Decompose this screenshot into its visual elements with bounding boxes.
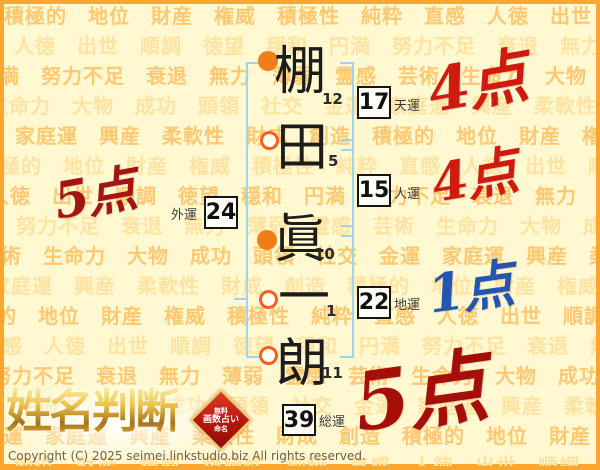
jin-un-value-box: 15 xyxy=(357,174,391,207)
name-character: 田 xyxy=(276,122,328,174)
ten-un-label: 天運 xyxy=(394,95,420,114)
gai-un-label: 外運 xyxy=(171,204,197,223)
inner-bracket-line xyxy=(352,62,354,358)
inner-bracket-top-cap xyxy=(340,62,352,64)
chi-un-score: 1点 xyxy=(425,258,516,321)
stroke-count: 1 xyxy=(326,302,336,320)
outer-bracket-line xyxy=(246,62,248,358)
sou-un-score: 5点 xyxy=(349,345,491,443)
inner-bracket-tick xyxy=(341,225,352,227)
name-character: 一 xyxy=(278,272,330,324)
outer-bracket-tick xyxy=(234,298,246,300)
inner-bracket-tick xyxy=(341,149,352,151)
outer-bracket-bottom-cap xyxy=(246,356,260,358)
inner-bracket-tick xyxy=(341,235,352,237)
char-bullet-icon xyxy=(259,290,278,309)
background-word-row: 積極的 地位 財産 権威 積極性 純粋 直感 人徳 出世 順調 徳望 穏和 円満… xyxy=(4,4,596,30)
jin-un-score: 4点 xyxy=(428,145,520,211)
seal-line-2: 画数占い xyxy=(203,415,239,425)
seal-text: 無料 画数占い 命名 xyxy=(201,400,241,440)
seal-line-1: 無料 xyxy=(214,407,228,415)
gai-un-value-box: 24 xyxy=(204,196,238,229)
chi-un-label: 地運 xyxy=(394,294,420,313)
stroke-count: 11 xyxy=(322,364,343,382)
stroke-count: 5 xyxy=(328,152,338,170)
stroke-count: 12 xyxy=(322,90,343,108)
jin-un-label: 人運 xyxy=(394,183,420,202)
site-logo[interactable]: 姓名判断 xyxy=(6,386,178,437)
gai-un-score: 5点 xyxy=(50,163,138,226)
chi-un-value-box: 22 xyxy=(357,286,391,319)
copyright-text: Copyright (C) 2025 seimei.linkstudio.biz… xyxy=(8,449,366,463)
ten-un-score: 4点 xyxy=(424,46,531,122)
name-character: 棚 xyxy=(274,46,326,98)
ten-un-value-box: 17 xyxy=(357,86,391,119)
stroke-count: 10 xyxy=(314,245,335,263)
sou-un-label: 総運 xyxy=(319,411,345,430)
seal-line-3: 命名 xyxy=(214,425,228,433)
sou-un-value-box: 39 xyxy=(282,404,316,436)
seimei-result-page: 積極的 地位 財産 権威 積極性 純粋 直感 人徳 出世 順調 徳望 穏和 円満… xyxy=(0,0,600,470)
inner-bracket-tick xyxy=(341,139,352,141)
name-character: 朗 xyxy=(276,338,328,390)
